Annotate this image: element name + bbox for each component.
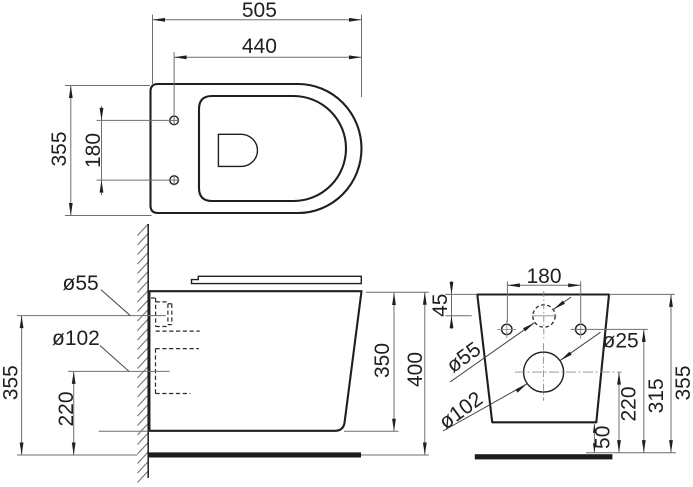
- svg-text:ø102: ø102: [52, 327, 100, 350]
- svg-text:220: 220: [55, 391, 78, 426]
- svg-text:440: 440: [242, 35, 277, 58]
- svg-text:ø55: ø55: [63, 272, 99, 295]
- svg-text:505: 505: [242, 0, 277, 22]
- svg-text:220: 220: [618, 386, 641, 421]
- svg-text:355: 355: [0, 365, 23, 400]
- svg-text:ø25: ø25: [603, 330, 639, 353]
- svg-text:315: 315: [645, 378, 668, 413]
- svg-text:350: 350: [371, 343, 394, 378]
- svg-text:180: 180: [526, 265, 561, 288]
- svg-text:180: 180: [82, 133, 105, 168]
- svg-text:400: 400: [404, 352, 427, 387]
- svg-text:50: 50: [592, 426, 615, 449]
- svg-text:355: 355: [672, 365, 693, 400]
- svg-text:45: 45: [429, 294, 452, 317]
- svg-text:355: 355: [48, 131, 71, 166]
